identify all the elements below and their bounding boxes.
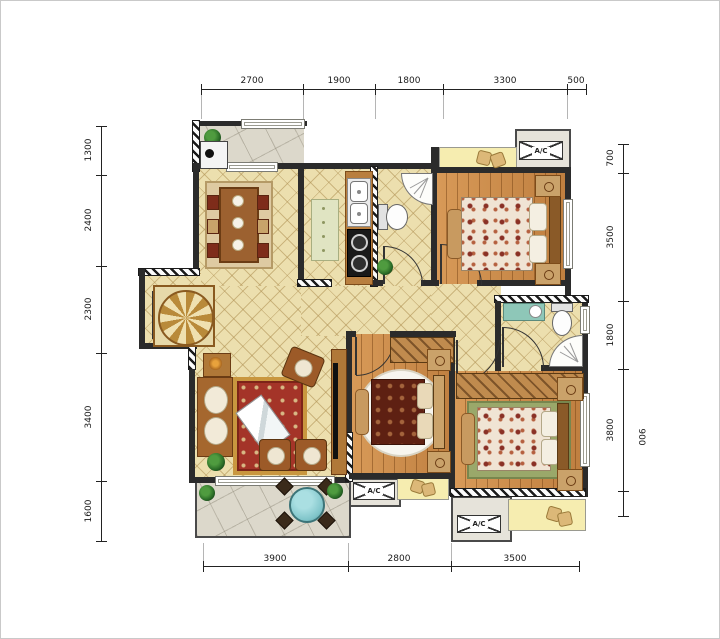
sink-basin: [350, 181, 368, 202]
master-bench: [461, 413, 475, 465]
dim-label-right-offset: 900: [636, 415, 646, 459]
shower-spray-icon: [402, 174, 432, 204]
shower-spray-icon: [550, 336, 582, 366]
dining-plate: [232, 217, 244, 229]
dim-label-left-3: 2300: [84, 287, 94, 331]
bedroom1-bed: [461, 197, 533, 271]
ac-unit-bottommid: A/C: [353, 482, 395, 500]
dim-tick: [96, 541, 107, 542]
foyer-medallion: [153, 285, 215, 347]
bathroom2-shower: [549, 335, 583, 367]
living-plant-icon: [207, 453, 225, 471]
living-balcony-slider: [215, 476, 335, 486]
master-nightstand: [557, 469, 583, 491]
dim-label-top-2: 1900: [317, 76, 361, 86]
balcony-plant-icon: [327, 483, 343, 499]
dim-tick: [579, 561, 580, 572]
dim-label-left-1: 1300: [84, 128, 94, 172]
dining-chair: [257, 219, 269, 234]
bedroom2-pillow: [417, 413, 433, 439]
master-headboard: [557, 403, 569, 473]
bathroom1-shower: [401, 173, 433, 205]
wall-bath1-bottom-east: [421, 280, 439, 286]
dim-tick: [203, 561, 204, 572]
dim-label-left-5: 1600: [84, 489, 94, 533]
dim-tick: [96, 353, 107, 354]
bay-cushion: [557, 511, 574, 528]
dim-tick: [443, 84, 444, 95]
wall-living-left: [189, 369, 195, 483]
bedroom1-pillow: [529, 203, 547, 231]
dim-label-top-5: 500: [554, 76, 598, 86]
wall-dining-left: [193, 169, 199, 273]
vanity-sink: [529, 305, 542, 318]
dim-label-bottom-2: 2800: [377, 554, 421, 564]
wall-bedroom1-top: [431, 167, 569, 173]
wall-din-kitchen: [298, 167, 304, 286]
bedroom1-nightstand: [535, 263, 561, 285]
bedroom2-nightstand: [427, 451, 451, 473]
dim-ext: [203, 543, 204, 561]
master-right-window: [580, 393, 590, 467]
television: [333, 363, 338, 459]
laundry-dining-window: [226, 162, 278, 172]
dim-ext: [451, 543, 452, 561]
ac-unit-topright: A/C: [519, 141, 563, 160]
dim-ext: [375, 95, 376, 119]
dim-ext: [303, 95, 304, 119]
dim-tick: [348, 561, 349, 572]
island-dot: [322, 249, 325, 252]
dim-ext: [443, 95, 444, 119]
side-table-pot: [209, 357, 222, 370]
dim-tick: [618, 516, 629, 517]
master-nightstand: [557, 377, 583, 401]
bathroom2-toilet-bowl: [552, 310, 572, 336]
bedroom2-door-leaf: [355, 337, 357, 375]
dining-plate: [232, 239, 244, 251]
dim-tick: [451, 561, 452, 572]
floor-plan-canvas: A/C A/C A/C 2700 1900 1800 3300 500 1300…: [0, 0, 720, 639]
dim-tick: [618, 144, 629, 145]
dim-tick: [618, 173, 629, 174]
wall-foyer-left: [139, 269, 145, 349]
cooktop-burner: [351, 234, 368, 251]
master-bed: [477, 407, 551, 471]
dining-chair: [257, 195, 269, 210]
dim-tick: [96, 126, 107, 127]
wall-kitchen-bottom-hatched: [298, 280, 331, 286]
kitchen-island: [311, 199, 339, 261]
dim-label-left-2: 2400: [84, 198, 94, 242]
island-dot: [322, 221, 325, 224]
balcony-plant-icon: [199, 485, 215, 501]
dim-tick: [618, 369, 629, 370]
bedroom2-headboard: [433, 375, 445, 449]
sink-basin: [350, 203, 368, 224]
dim-label-right-4: 3800: [606, 408, 616, 452]
cooktop-burner: [351, 255, 368, 272]
dim-label-bottom-3: 3500: [493, 554, 537, 564]
bedroom1-pillow: [529, 235, 547, 263]
bedroom1-right-window: [563, 199, 573, 269]
bathroom1-toilet-bowl: [386, 204, 408, 230]
bathroom2-right-window: [580, 306, 590, 334]
dim-label-top-4: 3300: [483, 76, 527, 86]
dim-ext: [348, 543, 349, 561]
wall-bathroom2-left: [495, 301, 501, 371]
dim-tick: [96, 481, 107, 482]
dim-ext: [201, 95, 202, 119]
dim-ext: [567, 95, 568, 119]
island-dot: [322, 235, 325, 238]
dim-label-top-3: 1800: [387, 76, 431, 86]
dim-tick: [618, 301, 629, 302]
bedroom2-nightstand: [427, 349, 451, 371]
dim-label-left-4: 3400: [84, 395, 94, 439]
dining-chair: [257, 243, 269, 258]
dim-tick: [618, 491, 629, 492]
sofa-cushion: [204, 386, 228, 414]
dim-tick: [303, 84, 304, 95]
wall-foyer-top-hatched: [139, 269, 199, 275]
dim-line-right: [623, 144, 624, 516]
dining-chair: [207, 219, 219, 234]
dining-chair: [207, 195, 219, 210]
bedroom1-nightstand: [535, 175, 561, 197]
dim-tick: [375, 84, 376, 95]
island-dot: [322, 207, 325, 210]
ac-unit-bottomright: A/C: [457, 515, 501, 533]
sofa-cushion: [204, 417, 228, 445]
bedroom2-pillow: [417, 383, 433, 409]
living-armchair: [295, 439, 327, 471]
bedroom1-door-leaf: [440, 244, 442, 284]
dining-chair: [207, 243, 219, 258]
dim-line-left: [101, 126, 102, 541]
dim-label-bottom-1: 3900: [253, 554, 297, 564]
bathroom1-plant-icon: [377, 259, 393, 275]
living-armchair: [259, 439, 291, 471]
dining-plate: [232, 195, 244, 207]
washing-machine: [200, 141, 228, 169]
dim-line-top: [201, 89, 587, 90]
dim-tick: [96, 266, 107, 267]
dim-label-top-1: 2700: [230, 76, 274, 86]
wall-bedroom2-bottom: [349, 473, 455, 479]
bathroom2-door-leaf: [502, 327, 504, 367]
dim-tick: [201, 84, 202, 95]
dim-tick: [96, 175, 107, 176]
dim-label-right-3: 1800: [606, 313, 616, 357]
bedroom2-chaise: [355, 389, 369, 435]
laundry-top-window: [241, 119, 305, 129]
dim-label-right-2: 3500: [606, 215, 616, 259]
dim-label-right-1: 700: [606, 136, 616, 180]
dim-line-bottom: [203, 566, 579, 567]
wall-bathroom2-top-hatched: [495, 296, 588, 302]
